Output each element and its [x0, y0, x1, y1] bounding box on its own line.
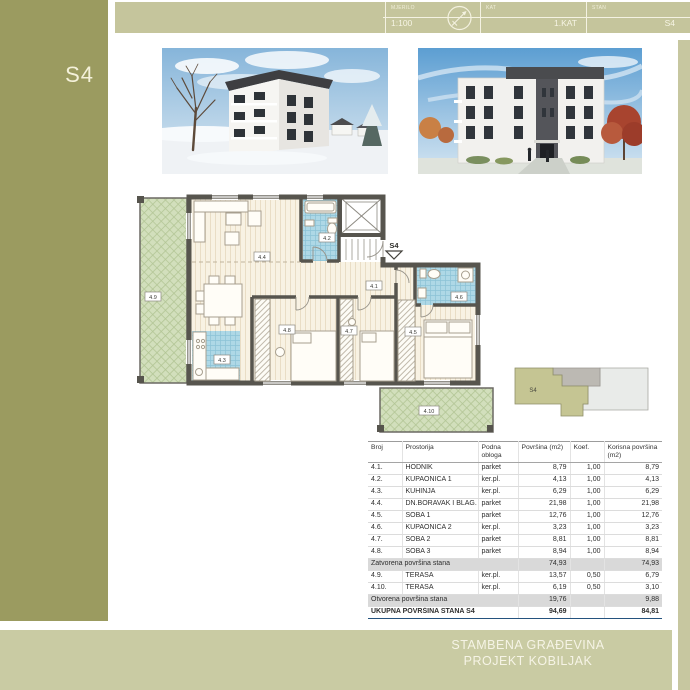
cell-korisna: 9,88 [604, 595, 662, 607]
col-header-broj: Broj [368, 442, 402, 463]
cell-korisna: 6,29 [604, 487, 662, 499]
area-table: Broj Prostorija Podna obloga Površina (m… [368, 441, 662, 619]
unit-label: STAN [592, 5, 606, 11]
cell-koef: 0,50 [570, 571, 604, 583]
cell-povrsina: 6,29 [518, 487, 570, 499]
scale-value: 1:100 [391, 18, 412, 28]
cell-povrsina: 94,69 [518, 607, 570, 619]
cell-korisna: 6,79 [604, 571, 662, 583]
cell-koef: 1,00 [570, 475, 604, 487]
col-header-povrsina: Površina (m2) [518, 442, 570, 463]
left-sidebar: S4 [0, 0, 108, 621]
scale-label: MJERILO [391, 5, 415, 11]
area-table-container: Broj Prostorija Podna obloga Površina (m… [368, 441, 662, 619]
cell-koef: 1,00 [570, 523, 604, 535]
room-label-4-3: 4.3 [218, 358, 226, 364]
cell-korisna: 8,94 [604, 547, 662, 559]
drawing-sheet: S4 MJERILO 1:100 KAT 1.KAT STAN S4 STAMB… [0, 0, 690, 690]
cell-korisna: 4,13 [604, 475, 662, 487]
cell-prostorija: SOBA 3 [402, 547, 478, 559]
cell-koef [570, 559, 604, 571]
room-label-4-2: 4.2 [323, 236, 331, 242]
cell-povrsina: 74,93 [518, 559, 570, 571]
cell-podna-obloga: parket [478, 547, 518, 559]
cell-koef: 1,00 [570, 547, 604, 559]
area-table-body: 4.1.HODNIKparket8,791,008,794.2.KUPAONIC… [368, 463, 662, 619]
table-summary-row: Otvorena površina stana19,769,88 [368, 595, 662, 607]
cell-koef: 0,50 [570, 583, 604, 595]
cell-koef [570, 595, 604, 607]
cell-label: UKUPNA POVRŠINA STANA S4 [368, 607, 518, 619]
table-row: 4.5.SOBA 1parket12,761,0012,76 [368, 511, 662, 523]
cell-podna-obloga: ker.pl. [478, 475, 518, 487]
cell-korisna: 3,23 [604, 523, 662, 535]
cell-povrsina: 8,81 [518, 535, 570, 547]
cell-podna-obloga: ker.pl. [478, 487, 518, 499]
cell-broj: 4.3. [368, 487, 402, 499]
unit-value: S4 [592, 18, 675, 28]
table-row: 4.9.TERASAker.pl.13,570,506,79 [368, 571, 662, 583]
col-header-koef: Koef. [570, 442, 604, 463]
key-plan-label: S4 [529, 388, 537, 394]
building-render-front [418, 48, 642, 174]
cell-povrsina: 8,79 [518, 463, 570, 475]
cell-koef: 1,00 [570, 499, 604, 511]
room-label-4-4: 4.4 [258, 255, 266, 261]
cell-podna-obloga: parket [478, 511, 518, 523]
entrance-marker-label: S4 [389, 241, 399, 250]
col-header-prostorija: Prostorija [402, 442, 478, 463]
entrance-marker: S4 [386, 241, 402, 259]
cell-label: Otvorena površina stana [368, 595, 518, 607]
room-label-4-1: 4.1 [370, 284, 378, 290]
room-label-4-7: 4.7 [345, 329, 353, 335]
cell-broj: 4.1. [368, 463, 402, 475]
cell-prostorija: SOBA 2 [402, 535, 478, 547]
cell-koef [570, 607, 604, 619]
col-header-korisna: Korisna površina (m2) [604, 442, 662, 463]
cell-koef: 1,00 [570, 463, 604, 475]
project-title-line1: STAMBENA GRAĐEVINA [408, 637, 648, 653]
room-label-4-6: 4.6 [455, 295, 463, 301]
cell-povrsina: 21,98 [518, 499, 570, 511]
cell-podna-obloga: ker.pl. [478, 571, 518, 583]
cell-podna-obloga: parket [478, 535, 518, 547]
floor-value: 1.KAT [486, 18, 577, 28]
north-arrow-icon [445, 3, 474, 32]
cell-povrsina: 6,19 [518, 583, 570, 595]
cell-prostorija: TERASA [402, 571, 478, 583]
table-row: 4.2.KUPAONICA 1ker.pl.4,131,004,13 [368, 475, 662, 487]
cell-koef: 1,00 [570, 535, 604, 547]
project-title-line2: PROJEKT KOBILJAK [408, 653, 648, 669]
cell-broj: 4.2. [368, 475, 402, 487]
cell-broj: 4.9. [368, 571, 402, 583]
cell-prostorija: KUPAONICA 2 [402, 523, 478, 535]
cell-podna-obloga: parket [478, 499, 518, 511]
cell-povrsina: 8,94 [518, 547, 570, 559]
project-title: STAMBENA GRAĐEVINA PROJEKT KOBILJAK [408, 637, 648, 669]
table-row: 4.6.KUPAONICA 2ker.pl.3,231,003,23 [368, 523, 662, 535]
cell-povrsina: 4,13 [518, 475, 570, 487]
cell-prostorija: KUPAONICA 1 [402, 475, 478, 487]
room-label-4-10: 4.10 [424, 409, 435, 415]
col-header-podna-obloga: Podna obloga [478, 442, 518, 463]
key-plan: S4 [508, 360, 653, 420]
cell-broj: 4.4. [368, 499, 402, 511]
table-total-row: UKUPNA POVRŠINA STANA S494,6984,81 [368, 607, 662, 619]
cell-broj: 4.7. [368, 535, 402, 547]
table-row: 4.3.KUHINJAker.pl.6,291,006,29 [368, 487, 662, 499]
cell-prostorija: HODNIK [402, 463, 478, 475]
table-summary-row: Zatvorena površina stana74,9374,93 [368, 559, 662, 571]
cell-broj: 4.5. [368, 511, 402, 523]
cell-koef: 1,00 [570, 511, 604, 523]
sidebar-apartment-label: S4 [0, 62, 94, 88]
room-label-4-9: 4.9 [149, 295, 157, 301]
cell-prostorija: KUHINJA [402, 487, 478, 499]
cell-label: Zatvorena površina stana [368, 559, 518, 571]
title-block: MJERILO 1:100 KAT 1.KAT STAN S4 [115, 2, 690, 33]
cell-koef: 1,00 [570, 487, 604, 499]
footer-bar: STAMBENA GRAĐEVINA PROJEKT KOBILJAK [0, 630, 672, 690]
cell-podna-obloga: ker.pl. [478, 583, 518, 595]
table-row: 4.1.HODNIKparket8,791,008,79 [368, 463, 662, 475]
cell-korisna: 3,10 [604, 583, 662, 595]
cell-prostorija: SOBA 1 [402, 511, 478, 523]
stairwell [340, 197, 383, 262]
room-label-4-8: 4.8 [283, 328, 291, 334]
cell-korisna: 21,98 [604, 499, 662, 511]
cell-povrsina: 12,76 [518, 511, 570, 523]
cell-broj: 4.6. [368, 523, 402, 535]
cell-prostorija: DN.BORAVAK I BLAG. [402, 499, 478, 511]
cell-broj: 4.10. [368, 583, 402, 595]
cell-povrsina: 3,23 [518, 523, 570, 535]
cell-korisna: 8,81 [604, 535, 662, 547]
building-render-winter [162, 48, 388, 174]
cell-povrsina: 19,76 [518, 595, 570, 607]
cell-korisna: 84,81 [604, 607, 662, 619]
cell-povrsina: 13,57 [518, 571, 570, 583]
table-row: 4.10.TERASAker.pl.6,190,503,10 [368, 583, 662, 595]
cell-podna-obloga: parket [478, 463, 518, 475]
cell-korisna: 8,79 [604, 463, 662, 475]
table-row: 4.7.SOBA 2parket8,811,008,81 [368, 535, 662, 547]
cell-korisna: 74,93 [604, 559, 662, 571]
cell-podna-obloga: ker.pl. [478, 523, 518, 535]
floor-label: KAT [486, 5, 496, 11]
table-header-row: Broj Prostorija Podna obloga Površina (m… [368, 442, 662, 463]
cell-korisna: 12,76 [604, 511, 662, 523]
table-row: 4.8.SOBA 3parket8,941,008,94 [368, 547, 662, 559]
table-row: 4.4.DN.BORAVAK I BLAG.parket21,981,0021,… [368, 499, 662, 511]
terrace-4-9 [137, 196, 187, 383]
cell-broj: 4.8. [368, 547, 402, 559]
cell-prostorija: TERASA [402, 583, 478, 595]
room-label-4-5: 4.5 [409, 330, 417, 336]
